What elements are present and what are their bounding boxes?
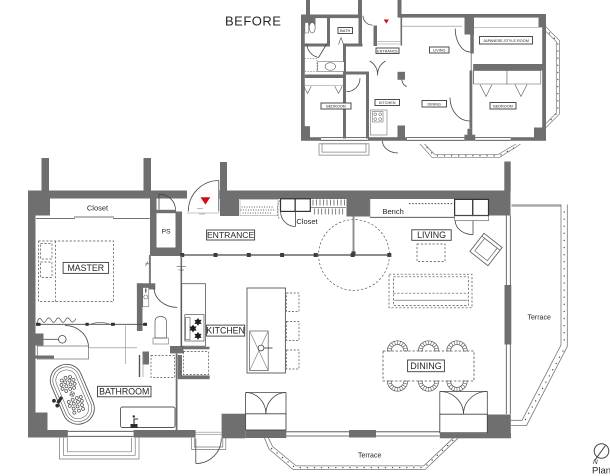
svg-text:KITCHEN: KITCHEN [379,101,396,105]
svg-text:Plan: Plan [592,466,610,476]
svg-text:Closet: Closet [296,217,318,226]
svg-text:LIVING: LIVING [433,49,445,53]
svg-text:MASTER: MASTER [67,263,104,273]
svg-text:BEDROOM: BEDROOM [326,105,346,109]
svg-text:ENTRANCE: ENTRANCE [207,230,255,240]
svg-text:KITCHEN: KITCHEN [206,326,245,336]
svg-text:JAPANESE-STYLE ROOM: JAPANESE-STYLE ROOM [483,39,529,43]
svg-text:BEDROOM: BEDROOM [493,104,513,108]
svg-text:Terrace: Terrace [528,314,551,321]
svg-text:Bench: Bench [383,207,404,216]
svg-text:DINING: DINING [428,102,441,106]
svg-text:BATHROOM: BATHROOM [99,387,149,397]
svg-text:BEFORE: BEFORE [225,14,281,29]
svg-text:Closet: Closet [87,204,109,213]
svg-text:LIVING: LIVING [417,230,446,240]
svg-text:BATH: BATH [340,28,350,33]
svg-text:Terrace: Terrace [358,452,381,459]
svg-text:ENTRANCE: ENTRANCE [377,49,398,53]
svg-text:DINING: DINING [410,361,442,371]
svg-text:PS: PS [161,229,171,236]
